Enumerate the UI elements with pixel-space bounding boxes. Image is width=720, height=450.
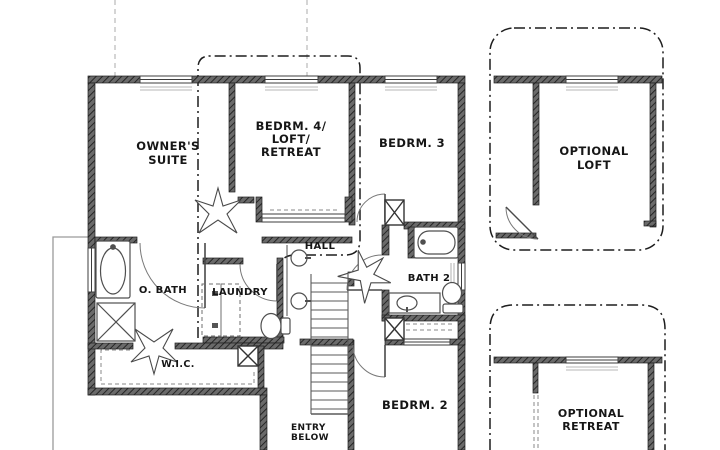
- window: [385, 76, 437, 83]
- window-sills: [99, 87, 618, 370]
- room-label-entry-below: ENTRYBELOW: [291, 423, 329, 443]
- bath2-tub: [414, 227, 458, 258]
- bedrm2-door: [353, 345, 385, 377]
- room-label-bedrm4-loft-retreat: BEDRM. 4/LOFT/RETREAT: [256, 119, 327, 159]
- window: [88, 248, 95, 292]
- owner-toilet: [261, 314, 290, 339]
- owner-bathtub: [96, 241, 130, 298]
- room-label-laundry: LAUNDRY: [212, 287, 268, 298]
- floor-plan-page: OWNER'SSUITEBEDRM. 4/LOFT/RETREATBEDRM. …: [0, 0, 720, 450]
- bath2-vanity-sink: [389, 293, 440, 313]
- window: [566, 357, 618, 363]
- room-label-optional-loft: OPTIONALLOFT: [559, 144, 628, 172]
- room-label-bedrm3: BEDRM. 3: [379, 136, 445, 150]
- window: [265, 76, 318, 83]
- room-label-bedrm2: BEDRM. 2: [382, 398, 448, 412]
- floor-below-outline: [53, 237, 88, 450]
- owner-suite-entry-doors: [195, 188, 241, 233]
- room-label-owners-suite: OWNER'SSUITE: [136, 139, 199, 167]
- floor-plan-drawing: OWNER'SSUITEBEDRM. 4/LOFT/RETREATBEDRM. …: [0, 0, 720, 450]
- window: [566, 76, 618, 83]
- niche-ledge: [262, 214, 345, 222]
- closet-x-box: [385, 200, 404, 225]
- room-label-hall: HALL: [305, 241, 336, 252]
- shower: [97, 303, 135, 341]
- window: [140, 76, 192, 83]
- owner-bath-door: [140, 243, 205, 308]
- room-label-wic: W.I.C.: [161, 359, 194, 370]
- bath2-toilet: [443, 283, 464, 314]
- roof-guide-lines: [115, 0, 307, 76]
- closet-header: [404, 339, 450, 345]
- room-label-o-bath: O. BATH: [139, 285, 187, 296]
- room-label-bath2: BATH 2: [408, 273, 451, 284]
- closet-x-box: [385, 318, 404, 340]
- bedrm3-door: [357, 194, 385, 222]
- closet-x-box: [238, 346, 258, 366]
- room-label-optional-retreat: OPTIONALRETREAT: [558, 407, 624, 433]
